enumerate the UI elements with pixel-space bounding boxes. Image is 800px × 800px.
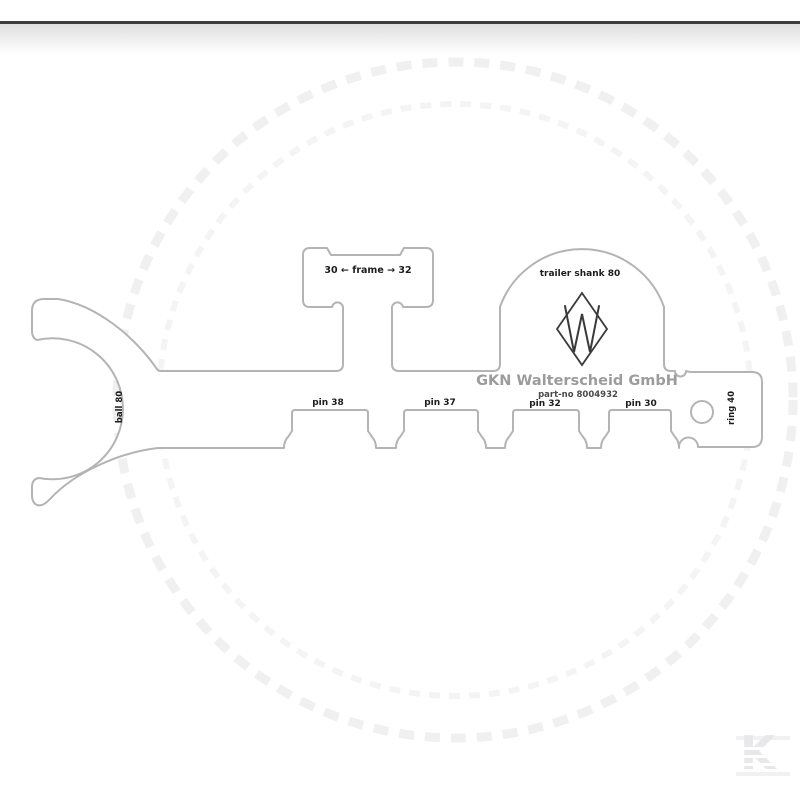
kramp-logo-gap — [736, 747, 790, 750]
product-image: 30 ← frame → 32 trailer shank 80 GKN Wal… — [0, 0, 800, 800]
label-pin-30: pin 30 — [625, 399, 657, 409]
label-pin-32: pin 32 — [529, 399, 561, 409]
hang-hole — [691, 401, 713, 423]
gauge-drawing: 30 ← frame → 32 trailer shank 80 GKN Wal… — [0, 0, 800, 800]
label-frame: 30 ← frame → 32 — [324, 265, 411, 276]
kramp-logo-icon: K — [736, 736, 790, 776]
label-brand: GKN Walterscheid GmbH — [476, 373, 678, 389]
label-trailer-shank: trailer shank 80 — [540, 269, 621, 279]
kramp-logo-gap — [736, 755, 790, 758]
label-pin-37: pin 37 — [424, 398, 456, 408]
label-pin-38: pin 38 — [312, 398, 344, 408]
kramp-logo-gap — [736, 763, 790, 766]
kramp-logo-letter: K — [740, 730, 774, 776]
label-ball-80: ball 80 — [115, 391, 125, 424]
label-ring-40: ring 40 — [727, 391, 737, 425]
